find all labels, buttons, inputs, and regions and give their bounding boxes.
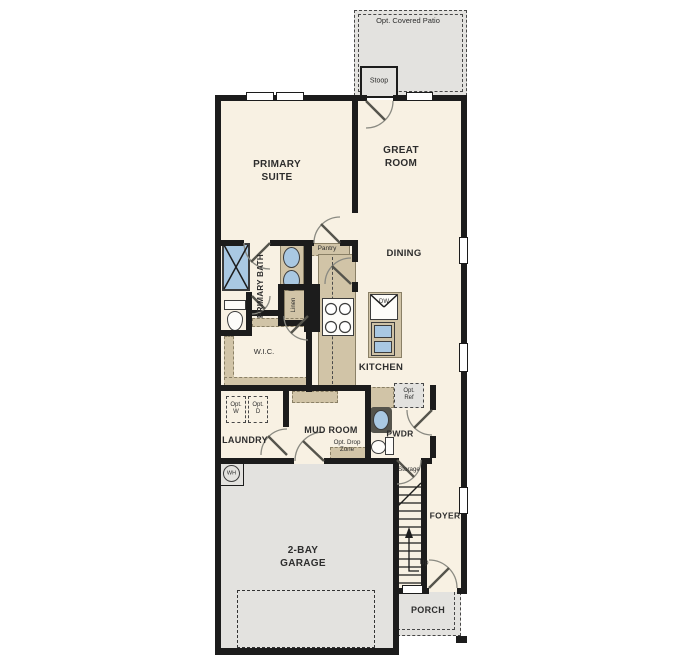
mud-room-bench	[292, 391, 338, 403]
opt-covered-patio-label: Opt. Covered Patio	[376, 16, 440, 26]
primary-suite-label: PRIMARY SUITE	[253, 158, 301, 184]
toilet-tank-pwdr	[385, 437, 394, 455]
wall	[220, 330, 252, 336]
water-heater: WH	[223, 465, 240, 482]
dishwasher-label: DW	[379, 299, 389, 307]
wall	[306, 316, 312, 392]
primary-bath-label: PRIMARY BATH	[256, 251, 266, 321]
window	[276, 92, 304, 101]
mud-room-label: MUD ROOM	[304, 425, 357, 437]
laundry-label: LAUNDRY	[222, 435, 268, 447]
island-sink-basin-2	[374, 341, 392, 353]
floor-plan: DW WH	[0, 0, 687, 661]
toilet-tank-primary	[224, 300, 246, 310]
window	[402, 585, 423, 594]
wall	[421, 458, 427, 588]
wall	[220, 240, 244, 246]
island-sink-basin-1	[374, 325, 392, 338]
window	[459, 343, 468, 372]
wall	[283, 391, 289, 427]
porch-label: PORCH	[411, 605, 445, 617]
wall	[365, 385, 371, 458]
wall	[457, 588, 467, 594]
wall	[393, 458, 399, 648]
great-room-label: GREAT ROOM	[383, 144, 419, 170]
linen-label: Linen	[291, 298, 299, 313]
opt-washer-label: Opt. W	[230, 402, 241, 416]
wall	[352, 282, 358, 292]
garage-label: 2-BAY GARAGE	[280, 544, 326, 570]
pantry-label: Pantry	[318, 245, 337, 253]
pwdr-label: PWDR	[386, 428, 413, 439]
wic-label: W.I.C.	[254, 347, 274, 357]
window	[246, 92, 274, 101]
wall	[430, 436, 436, 458]
storage-label: Storage	[398, 466, 420, 474]
opt-ref-label: Opt. Ref	[403, 388, 414, 402]
stoop-label: Stoop	[370, 76, 388, 85]
wall	[278, 320, 306, 326]
window	[406, 92, 433, 101]
wall	[304, 240, 312, 288]
opt-drop-zone-label: Opt. Drop Zone	[334, 439, 361, 453]
wall	[430, 385, 436, 410]
toilet-bowl-pwdr	[371, 440, 386, 454]
dining-label: DINING	[386, 248, 421, 260]
wall	[215, 458, 294, 464]
dishwasher: DW	[370, 294, 398, 320]
wall	[352, 100, 358, 213]
wall	[456, 636, 467, 643]
foyer-label: FOYER	[430, 510, 461, 521]
wall	[215, 648, 399, 655]
up-label: Up	[420, 558, 429, 567]
vanity-sink-1	[283, 247, 300, 268]
pwdr-sink	[373, 410, 389, 430]
wall	[220, 385, 365, 391]
window	[459, 237, 468, 264]
kitchen-label: KITCHEN	[359, 362, 403, 374]
shower	[222, 243, 250, 291]
water-heater-label: WH	[227, 470, 236, 477]
wall	[324, 458, 396, 464]
stove	[322, 298, 354, 336]
ref-counter	[368, 387, 394, 408]
garage-door-zone	[237, 590, 375, 648]
wall	[215, 95, 221, 655]
opt-dryer-label: Opt. D	[252, 402, 263, 416]
wall	[352, 240, 358, 262]
